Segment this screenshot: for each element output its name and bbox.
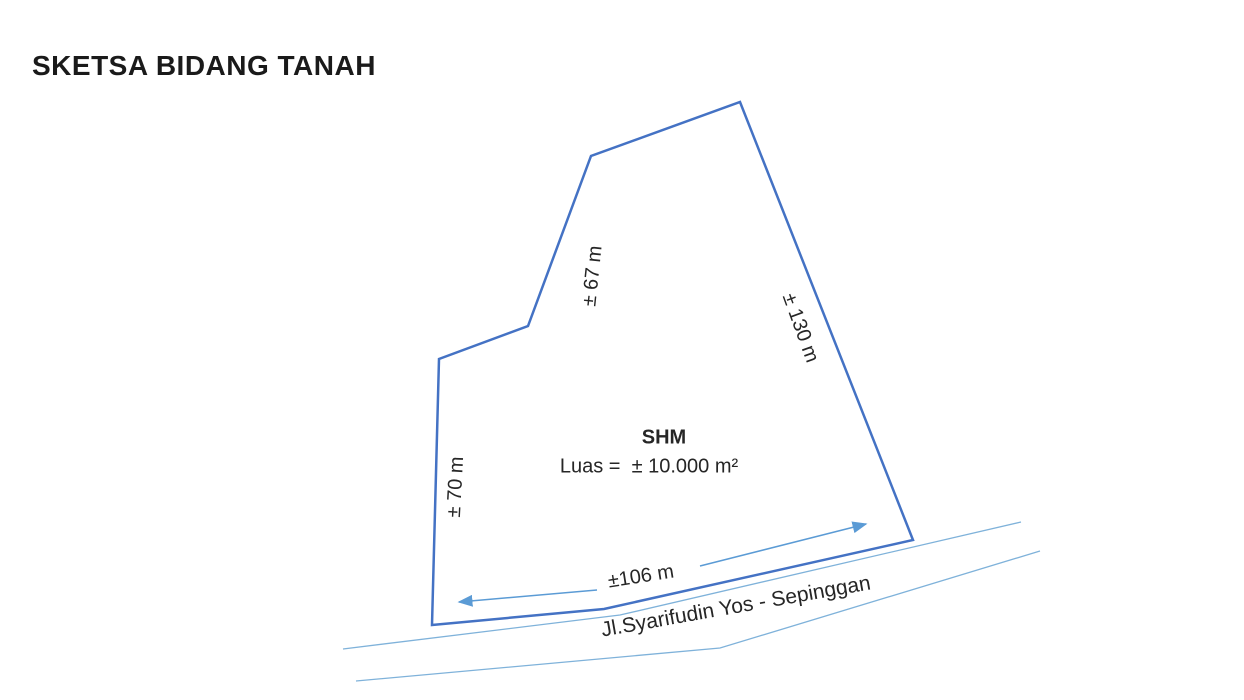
land-sketch-page: SKETSA BIDANG TANAH ± 67 m ± 130 m ± 70 … — [0, 0, 1244, 700]
dimension-arrow-left-icon — [459, 590, 597, 602]
parcel-area-label: Luas = ± 10.000 m² — [560, 456, 738, 479]
land-parcel-outline — [432, 102, 913, 625]
dimension-label-left-edge: ± 70 m — [443, 456, 469, 518]
parcel-certificate-label: SHM — [642, 427, 686, 450]
dimension-arrow-right-icon — [700, 524, 866, 566]
road-edge-upper — [343, 522, 1021, 649]
sketch-canvas — [0, 0, 1244, 700]
